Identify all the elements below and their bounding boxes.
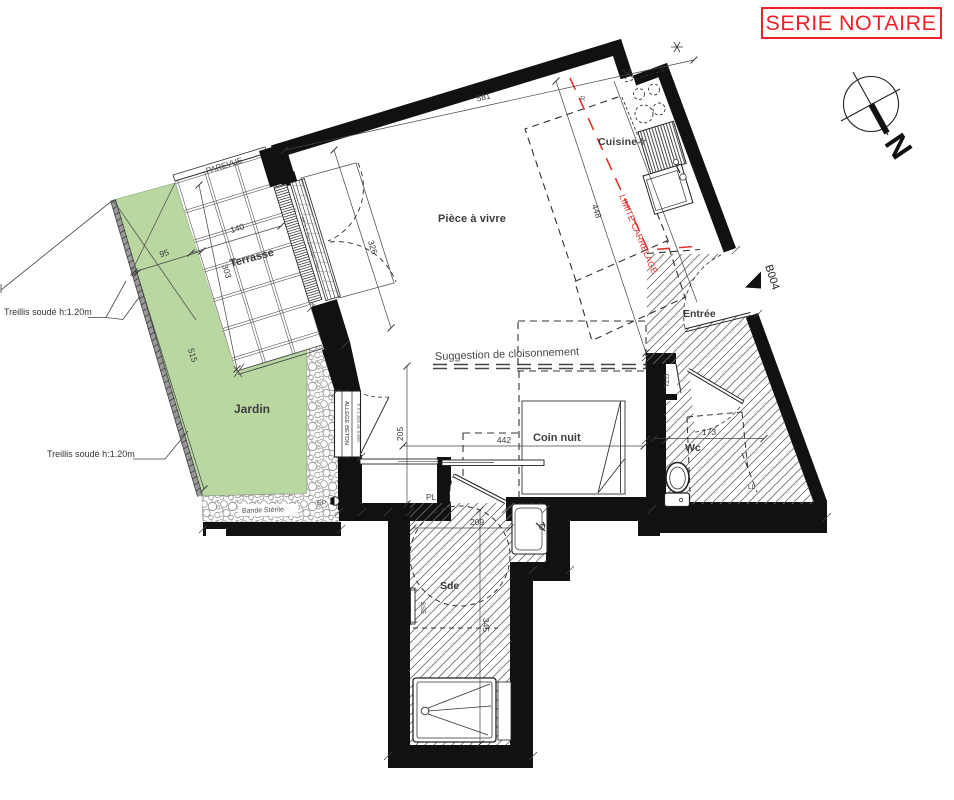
svg-text:ALLEGE BETON: ALLEGE BETON (343, 401, 349, 445)
svg-text:F. h:1.40m all. 0.90m: F. h:1.40m all. 0.90m (356, 404, 361, 443)
svg-text:SERIE NOTAIRE: SERIE NOTAIRE (766, 11, 937, 35)
svg-text:SSE: SSE (419, 601, 426, 615)
svg-text:Treillis soudé h:1.20m: Treillis soudé h:1.20m (4, 307, 92, 317)
svg-text:205: 205 (395, 427, 405, 441)
svg-text:Cuisine: Cuisine (598, 136, 637, 148)
svg-text:Sde: Sde (440, 580, 459, 592)
svg-text:Bande Stérile: Bande Stérile (242, 507, 284, 515)
svg-text:PL: PL (426, 492, 437, 502)
svg-text:Coin nuit: Coin nuit (533, 432, 581, 444)
svg-text:Jardin: Jardin (234, 402, 270, 416)
svg-text:GTL: GTL (662, 374, 671, 389)
svg-text:345: 345 (481, 618, 491, 632)
svg-text:LL: LL (748, 484, 756, 491)
svg-text:EP: EP (317, 500, 327, 507)
svg-text:Entrée: Entrée (683, 308, 716, 320)
svg-text:Wc: Wc (685, 442, 701, 454)
svg-text:Treillis soudé h:1.20m: Treillis soudé h:1.20m (47, 449, 135, 459)
svg-text:209: 209 (470, 517, 484, 527)
svg-text:442: 442 (497, 435, 511, 445)
svg-text:R: R (580, 94, 586, 103)
svg-text:173: 173 (702, 427, 716, 437)
svg-text:Pièce à vivre: Pièce à vivre (438, 213, 506, 225)
